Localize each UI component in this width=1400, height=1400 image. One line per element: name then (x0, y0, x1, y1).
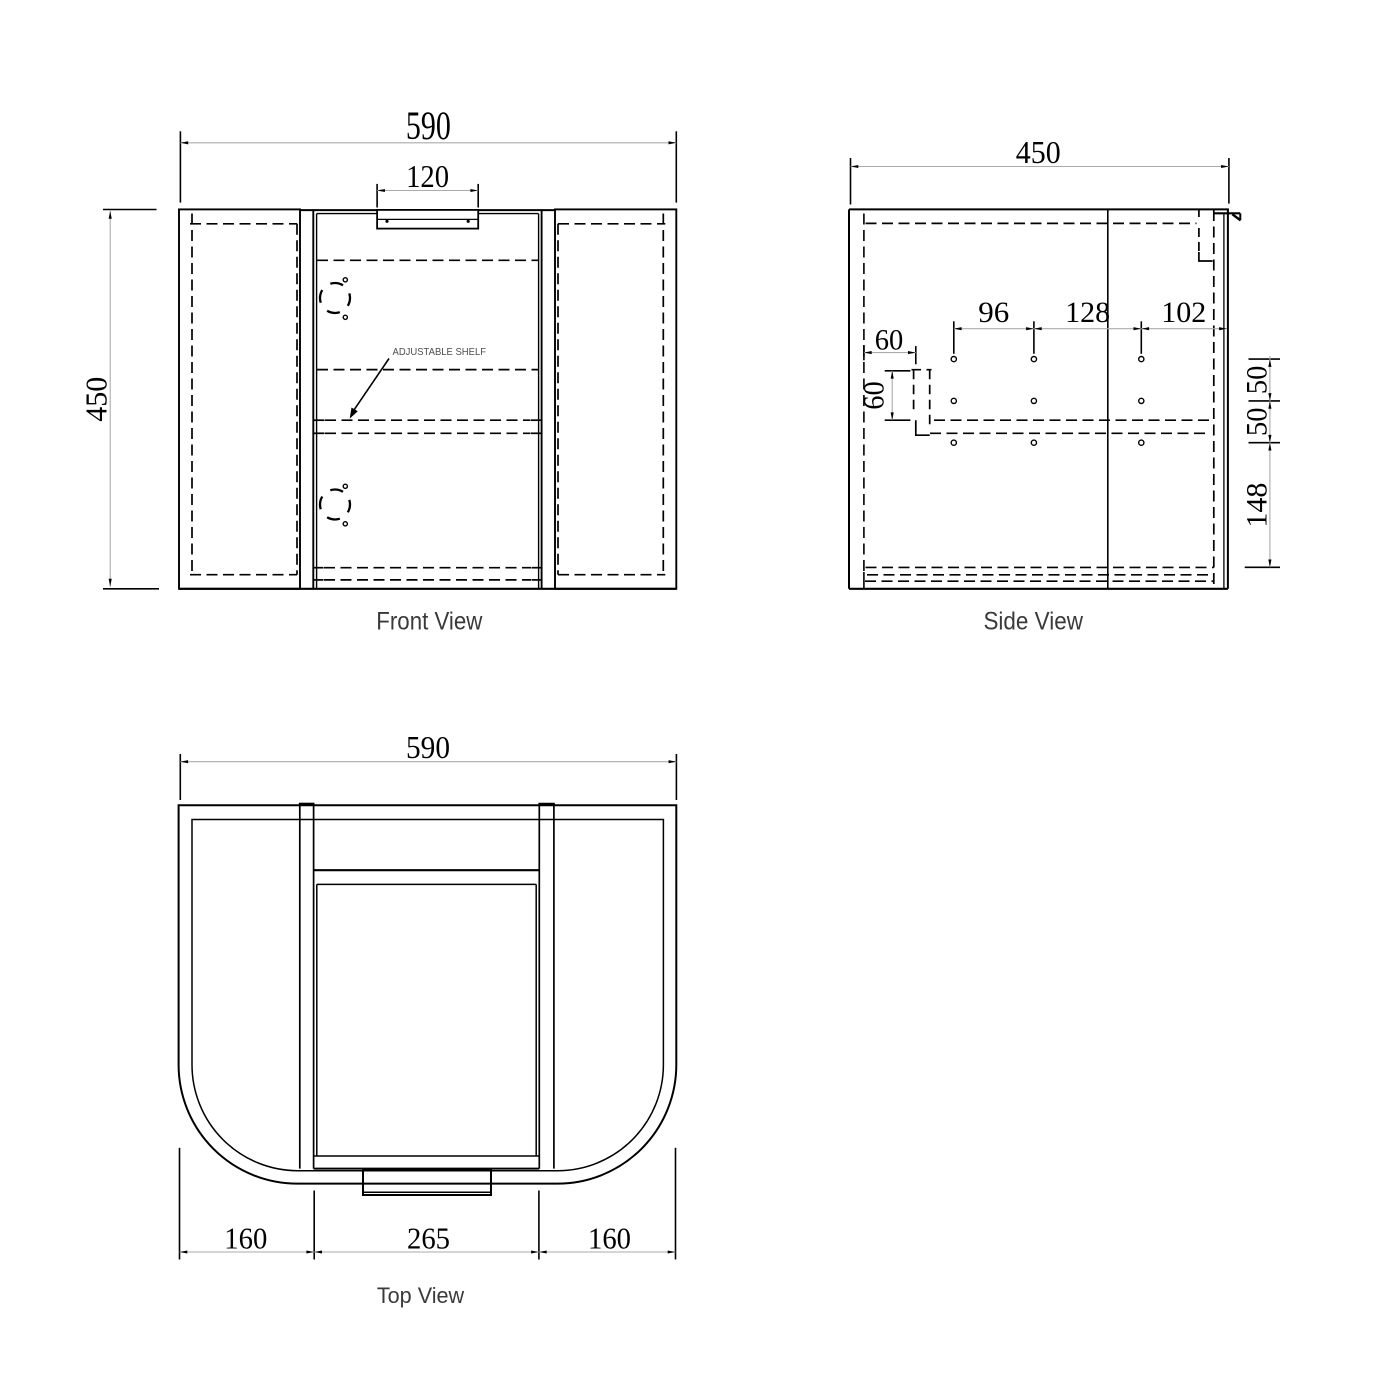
svg-text:Front View: Front View (376, 608, 483, 636)
svg-text:160: 160 (588, 1221, 631, 1256)
svg-text:96: 96 (978, 296, 1009, 329)
svg-text:590: 590 (406, 103, 451, 148)
svg-text:ADJUSTABLE SHELF: ADJUSTABLE SHELF (393, 346, 487, 358)
svg-text:590: 590 (406, 729, 450, 765)
svg-text:Top View: Top View (377, 1283, 465, 1308)
svg-text:60: 60 (858, 381, 891, 410)
svg-text:50: 50 (1241, 366, 1274, 395)
svg-text:148: 148 (1241, 483, 1274, 528)
svg-text:265: 265 (407, 1221, 450, 1256)
svg-text:450: 450 (1016, 135, 1061, 170)
svg-text:102: 102 (1161, 296, 1206, 329)
svg-text:450: 450 (78, 377, 113, 422)
svg-text:50: 50 (1241, 407, 1274, 436)
svg-text:128: 128 (1065, 296, 1110, 329)
svg-text:Side View: Side View (983, 607, 1083, 635)
svg-text:160: 160 (224, 1221, 267, 1256)
svg-text:120: 120 (406, 159, 449, 194)
svg-text:60: 60 (875, 324, 904, 357)
